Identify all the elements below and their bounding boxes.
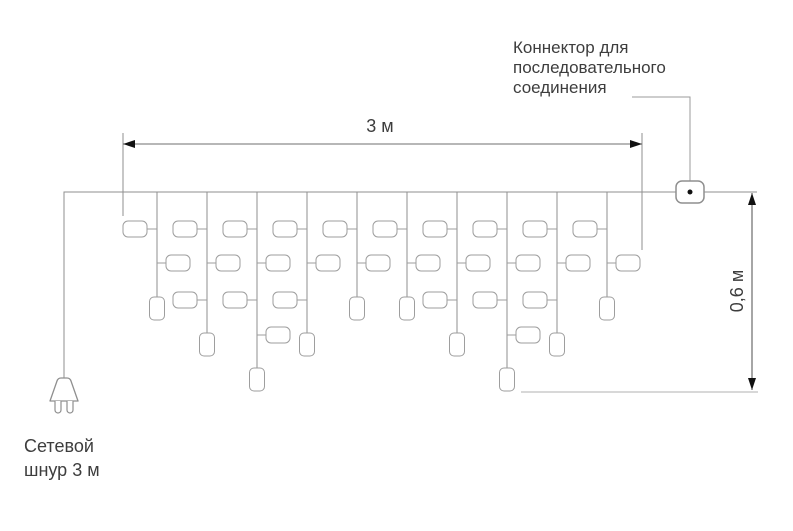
bulb-icon: [423, 292, 447, 308]
power-cord-label-line2: шнур 3 м: [24, 458, 100, 482]
bulb-icon: [316, 255, 340, 271]
connector-leader-line: [632, 97, 690, 181]
terminal-bulb-icon: [350, 297, 365, 320]
bulb-icon: [173, 292, 197, 308]
terminal-bulb-icon: [300, 333, 315, 356]
bulb-icon: [323, 221, 347, 237]
terminal-bulb-icon: [600, 297, 615, 320]
garland-schematic-page: Коннектор для последовательного соединен…: [0, 0, 793, 531]
power-cord-label-line1: Сетевой: [24, 434, 100, 458]
terminal-bulb-icon: [550, 333, 565, 356]
terminal-bulb-icon: [250, 368, 265, 391]
height-dimension-label: 0,6 м: [727, 260, 747, 322]
bulb-icon: [373, 221, 397, 237]
length-arrow-left-icon: [123, 140, 135, 148]
bulb-icon: [473, 221, 497, 237]
length-dimension-label: 3 м: [345, 116, 415, 137]
terminal-bulb-icon: [400, 297, 415, 320]
connector-label-line3: соединения: [513, 78, 666, 98]
bulb-icon: [466, 255, 490, 271]
bulb-icon: [616, 255, 640, 271]
terminal-bulb-icon: [150, 297, 165, 320]
garland-diagram: [0, 0, 793, 531]
terminal-bulb-icon: [200, 333, 215, 356]
plug-prong-icon-1: [55, 401, 61, 413]
terminal-bulb-icon: [500, 368, 515, 391]
bulb-icon: [566, 255, 590, 271]
bulb-icon: [266, 327, 290, 343]
bulb-icon: [273, 221, 297, 237]
terminal-bulb-icon: [450, 333, 465, 356]
bulb-icon: [266, 255, 290, 271]
main-wire: [64, 192, 757, 378]
bulb-icon: [523, 292, 547, 308]
bulb-icon: [423, 221, 447, 237]
bulb-icon: [273, 292, 297, 308]
bulb-icon: [516, 327, 540, 343]
connector-label: Коннектор для последовательного соединен…: [513, 38, 666, 98]
bulb-icon: [473, 292, 497, 308]
bulb-icon: [573, 221, 597, 237]
height-arrow-top-icon: [748, 193, 756, 205]
power-plug-icon: [50, 378, 78, 401]
bulb-icon: [173, 221, 197, 237]
connector-label-line1: Коннектор для: [513, 38, 666, 58]
height-arrow-bottom-icon: [748, 378, 756, 390]
bulb-icon: [166, 255, 190, 271]
connector-label-line2: последовательного: [513, 58, 666, 78]
bulb-icon: [123, 221, 147, 237]
bulb-icon: [223, 221, 247, 237]
bulb-icon: [416, 255, 440, 271]
plug-prong-icon-2: [67, 401, 73, 413]
power-cord-label: Сетевой шнур 3 м: [24, 434, 100, 482]
bulb-icon: [216, 255, 240, 271]
bulb-icon: [366, 255, 390, 271]
connector-dot-icon: [688, 190, 693, 195]
bulb-icon: [523, 221, 547, 237]
length-arrow-right-icon: [630, 140, 642, 148]
bulb-icon: [516, 255, 540, 271]
bulb-icon: [223, 292, 247, 308]
